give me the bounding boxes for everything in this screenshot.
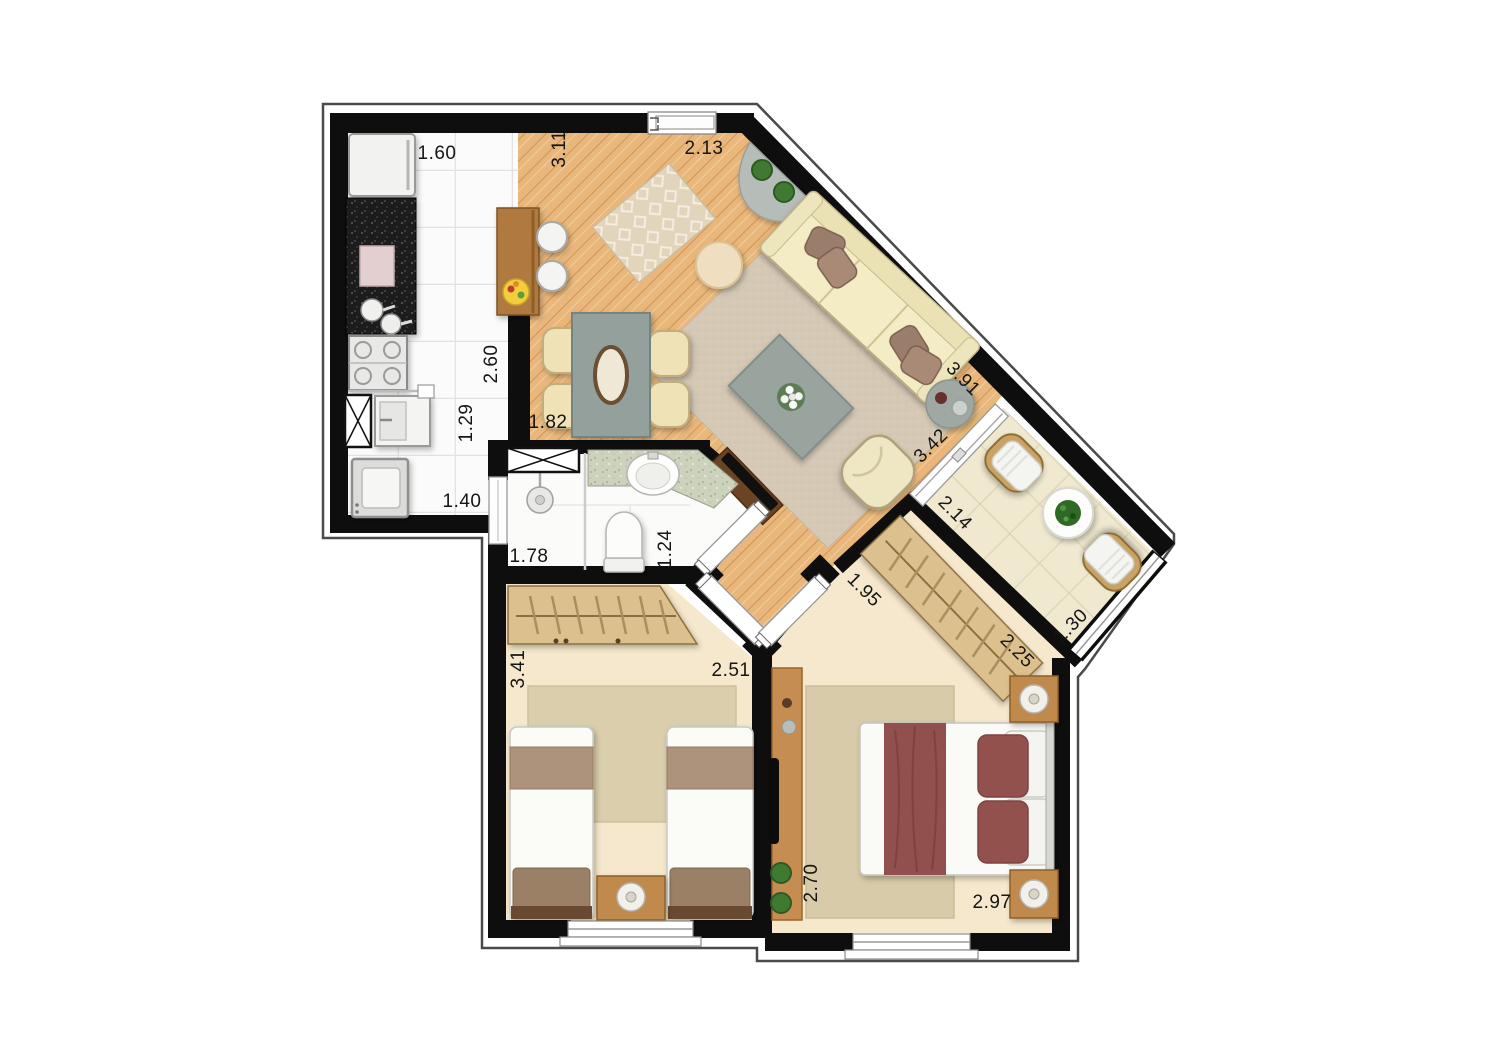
fridge bbox=[349, 134, 415, 196]
bedroom2-window-sill bbox=[845, 950, 978, 959]
twin-bed-1 bbox=[510, 727, 593, 919]
dim-bedroom1-side: 3.41 bbox=[508, 650, 529, 689]
pan-1 bbox=[361, 299, 383, 321]
bar-stool-2 bbox=[537, 261, 567, 291]
panel-plant-2 bbox=[771, 893, 791, 913]
dining-chair-3 bbox=[649, 331, 689, 376]
console-plant-2 bbox=[774, 182, 794, 202]
wall-top-left bbox=[330, 113, 648, 133]
dim-kitchen-right: 2.60 bbox=[481, 345, 502, 384]
bedroom2-nightstand-bottom bbox=[1010, 870, 1058, 918]
balcony-plant bbox=[1055, 500, 1081, 526]
bed1-blanket bbox=[513, 868, 590, 910]
bed2-footboard bbox=[668, 906, 752, 919]
balcony-table bbox=[1043, 488, 1093, 538]
bedroom1-window bbox=[560, 921, 701, 946]
bedroom2-tv bbox=[769, 758, 779, 844]
cutting-board bbox=[360, 246, 394, 286]
headboard bbox=[1046, 722, 1054, 876]
dim-bathroom-shower: 1.78 bbox=[510, 546, 549, 567]
dim-kitchen-top: 1.60 bbox=[418, 143, 457, 164]
bar-stool-1 bbox=[537, 222, 567, 252]
twin-bed-2 bbox=[667, 727, 753, 919]
bed2-blanket bbox=[670, 868, 750, 910]
dining-chair-4 bbox=[649, 382, 689, 427]
wall-dining-stub bbox=[508, 306, 530, 452]
toilet bbox=[604, 512, 644, 572]
bedroom2-nightstand-top bbox=[1010, 676, 1058, 722]
pan-2 bbox=[381, 314, 401, 334]
dim-bedroom2-bottom: 2.97 bbox=[973, 892, 1012, 913]
bed2-pillow bbox=[667, 747, 753, 789]
panel-decor-1 bbox=[782, 698, 792, 708]
toilet-bowl bbox=[606, 512, 642, 558]
wall-left bbox=[330, 113, 348, 533]
toilet-tank bbox=[604, 558, 644, 572]
entry-door bbox=[648, 112, 716, 134]
dim-bathroom-side: 1.24 bbox=[655, 530, 676, 569]
breakfast-bar bbox=[497, 208, 539, 315]
decor-ball-dark bbox=[935, 392, 947, 404]
floor-plan-drawing: 1.60 3.11 2.13 2.60 1.29 1.82 1.40 1.78 … bbox=[0, 0, 1500, 1050]
dim-bedroom1-top: 2.51 bbox=[712, 660, 751, 681]
accent-pillow-2 bbox=[978, 801, 1028, 863]
dim-bedroom2-side: 2.70 bbox=[801, 864, 822, 903]
wall-laundry-bath-lower bbox=[488, 543, 508, 573]
dim-laundry-right: 1.29 bbox=[456, 404, 477, 443]
panel-plant-1 bbox=[771, 863, 791, 883]
decor-ball-light bbox=[952, 400, 968, 416]
dim-living-top-right: 2.13 bbox=[685, 138, 724, 159]
sink-faucet bbox=[648, 452, 658, 459]
bedroom2-window bbox=[845, 934, 978, 959]
wall-laundry-bath-upper bbox=[488, 440, 508, 480]
bedroom1-window-sill bbox=[560, 937, 701, 946]
double-bed bbox=[860, 722, 1054, 876]
console-plant-1 bbox=[752, 160, 772, 180]
round-pouf bbox=[696, 242, 742, 288]
wall-bottom-3 bbox=[765, 933, 853, 951]
bed1-footboard bbox=[511, 906, 592, 919]
bed1-pillow bbox=[510, 747, 593, 789]
wall-bottom-1 bbox=[488, 920, 571, 938]
kitchen-laundry-door bbox=[418, 385, 434, 398]
dim-dining-bottom: 1.82 bbox=[529, 412, 568, 433]
accent-pillow-1 bbox=[978, 735, 1028, 797]
panel-decor-2 bbox=[782, 720, 796, 734]
floor-plan-page: 1.60 3.11 2.13 2.60 1.29 1.82 1.40 1.78 … bbox=[0, 0, 1500, 1050]
bedroom2-panel bbox=[769, 668, 802, 920]
dim-living-top-left: 3.11 bbox=[549, 130, 570, 168]
dim-laundry-bottom: 1.40 bbox=[443, 491, 482, 512]
table-centerpiece bbox=[595, 347, 627, 403]
entry-door-leaf bbox=[656, 116, 714, 129]
bedroom1-nightstand bbox=[597, 876, 665, 920]
